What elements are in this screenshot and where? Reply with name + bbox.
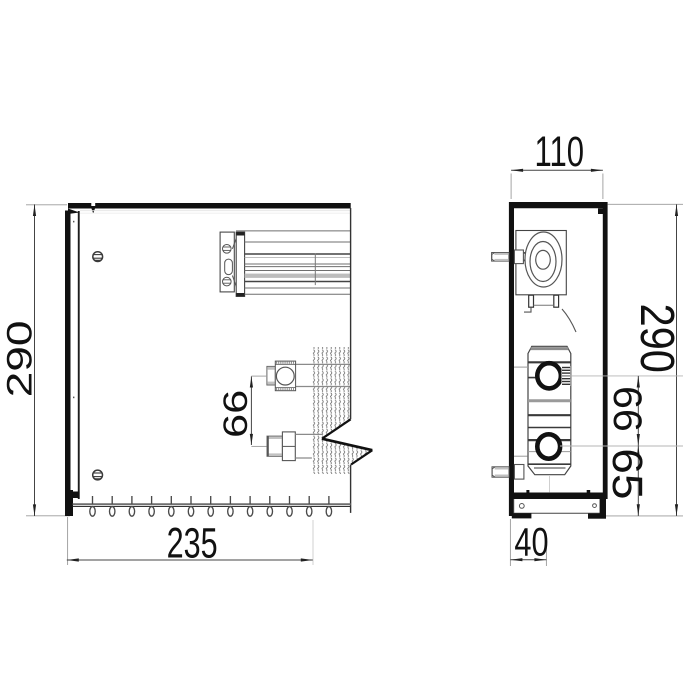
svg-text:40: 40	[514, 521, 548, 565]
svg-text:66: 66	[605, 386, 650, 432]
svg-text:65: 65	[603, 448, 650, 499]
svg-text:66: 66	[216, 390, 255, 438]
svg-text:235: 235	[167, 520, 218, 567]
svg-text:110: 110	[535, 127, 584, 175]
svg-text:290: 290	[0, 320, 39, 397]
svg-text:290: 290	[630, 303, 685, 373]
